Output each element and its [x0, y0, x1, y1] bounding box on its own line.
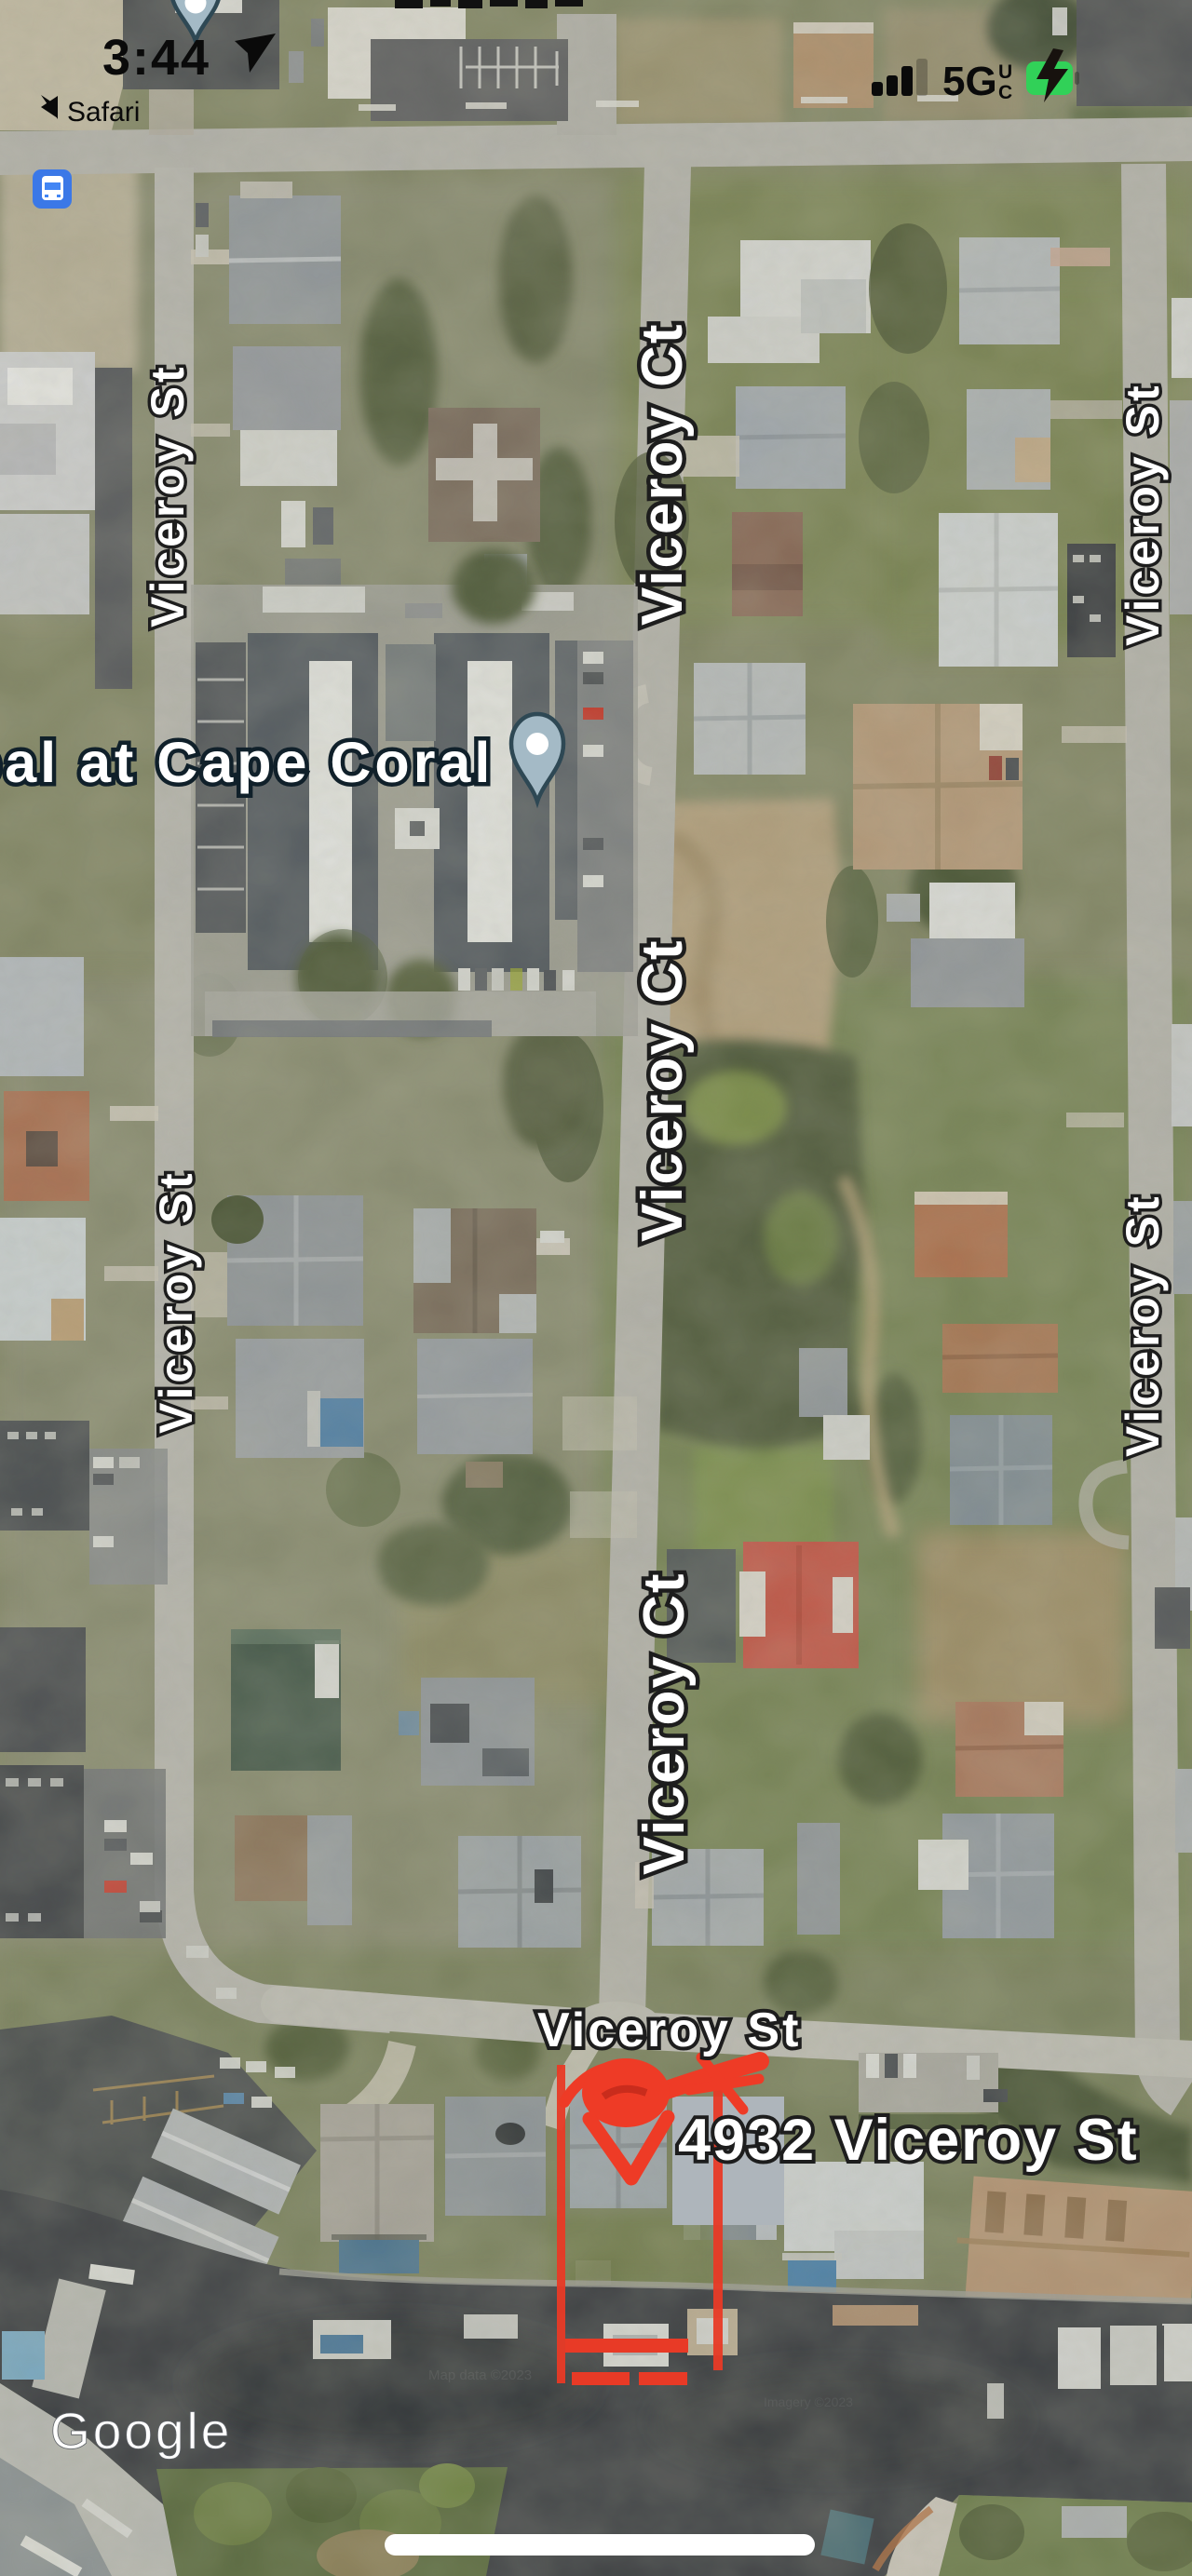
svg-text:Viceroy St: Viceroy St	[142, 363, 194, 627]
svg-text:C: C	[998, 82, 1012, 103]
svg-text:Viceroy Ct: Viceroy Ct	[632, 1571, 697, 1875]
svg-text:Viceroy St: Viceroy St	[1117, 382, 1169, 646]
svg-text:Google: Google	[50, 2402, 232, 2460]
svg-text:U: U	[998, 61, 1012, 83]
svg-text:Viceroy St: Viceroy St	[1117, 1193, 1169, 1457]
svg-text:Viceroy St: Viceroy St	[537, 2003, 801, 2057]
svg-text:Safari: Safari	[67, 97, 140, 128]
svg-text:Viceroy Ct: Viceroy Ct	[630, 322, 695, 626]
svg-text:5G: 5G	[942, 59, 997, 104]
svg-text:bal at Cape Coral: bal at Cape Coral	[0, 731, 494, 794]
svg-text:4932 Viceroy St: 4932 Viceroy St	[678, 2108, 1139, 2173]
svg-text:Viceroy Ct: Viceroy Ct	[630, 938, 695, 1242]
svg-text:Viceroy St: Viceroy St	[150, 1169, 202, 1434]
svg-text:3:44: 3:44	[102, 30, 210, 86]
